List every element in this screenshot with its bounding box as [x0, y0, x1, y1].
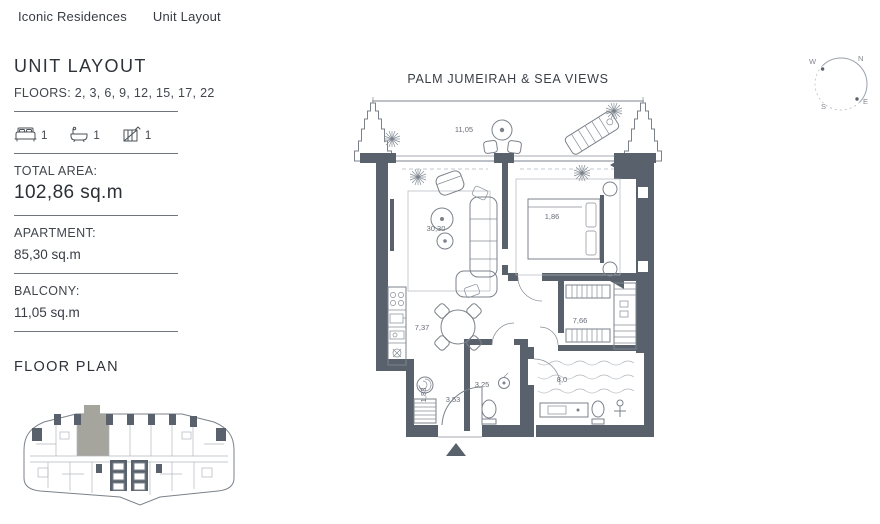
bath-icon: [69, 126, 89, 142]
wardrobe: 7,66: [540, 283, 636, 349]
laundry-dim-text: 1,83: [419, 388, 428, 403]
sofa: [456, 186, 497, 299]
living-area-text: 30,30: [427, 224, 446, 233]
bathroom-area-text: 8,0: [557, 375, 567, 384]
bed-icon: [14, 126, 37, 142]
apartment-area-value: 85,30 sq.m: [14, 247, 254, 262]
compass-n: N: [858, 54, 863, 63]
divider: [14, 111, 178, 112]
compass-w: W: [809, 57, 817, 66]
hall-area-text: 3,53: [446, 395, 461, 404]
entrance-arrow: [446, 443, 466, 456]
apartment-area-label: APARTMENT:: [14, 226, 254, 240]
divider: [14, 273, 178, 274]
breadcrumb: Iconic Residences Unit Layout: [18, 9, 221, 24]
balcony-area-label: BALCONY:: [14, 284, 254, 298]
floor-plan-title: FLOOR PLAN: [14, 359, 254, 375]
living-room: 30,30: [390, 169, 497, 298]
feature-counts: 1 1 1: [14, 121, 254, 142]
balconies-feature: 1: [122, 126, 151, 142]
compass-s: S: [821, 102, 826, 111]
balconies-count: 1: [145, 130, 151, 142]
bedrooms-count: 1: [41, 130, 47, 142]
divider: [14, 153, 178, 154]
wardrobe-area-text: 7,66: [573, 316, 588, 325]
divider: [14, 331, 178, 332]
balcony-area-value: 11,05 sq.m: [14, 305, 254, 320]
bathroom: 8,0: [534, 359, 634, 424]
unit-info-panel: UNIT LAYOUT FLOORS: 2, 3, 6, 9, 12, 15, …: [14, 56, 254, 524]
bathrooms-feature: 1: [69, 126, 99, 142]
divider: [14, 215, 178, 216]
highlighted-unit: [77, 414, 109, 456]
building-floor-plan-thumbnail: [14, 388, 246, 524]
view-direction-label: PALM JUMEIRAH & SEA VIEWS: [352, 72, 664, 86]
floors-list: FLOORS: 2, 3, 6, 9, 12, 15, 17, 22: [14, 86, 254, 100]
total-area-label: TOTAL AREA:: [14, 164, 254, 178]
balcony-icon: [122, 126, 141, 142]
compass-e: E: [863, 97, 868, 106]
compass-rose: W N S E: [803, 46, 877, 120]
bathrooms-count: 1: [93, 130, 99, 142]
bedroom-dim-text: 1,86: [545, 212, 560, 221]
page-title: UNIT LAYOUT: [14, 56, 254, 77]
nav-brand[interactable]: Iconic Residences: [18, 9, 127, 24]
balcony-area-text: 11,05: [455, 125, 473, 134]
wc: 3,25: [475, 323, 514, 424]
bedrooms-feature: 1: [14, 126, 47, 142]
nav-page-unit-layout[interactable]: Unit Layout: [153, 9, 221, 24]
tv-panel: [390, 199, 394, 251]
total-area-value: 102,86 sq.m: [14, 182, 254, 204]
balcony: 11,05: [355, 97, 662, 161]
kitchen-area-text: 7,37: [415, 323, 430, 332]
unit-floor-plan: 11,05: [352, 95, 664, 475]
